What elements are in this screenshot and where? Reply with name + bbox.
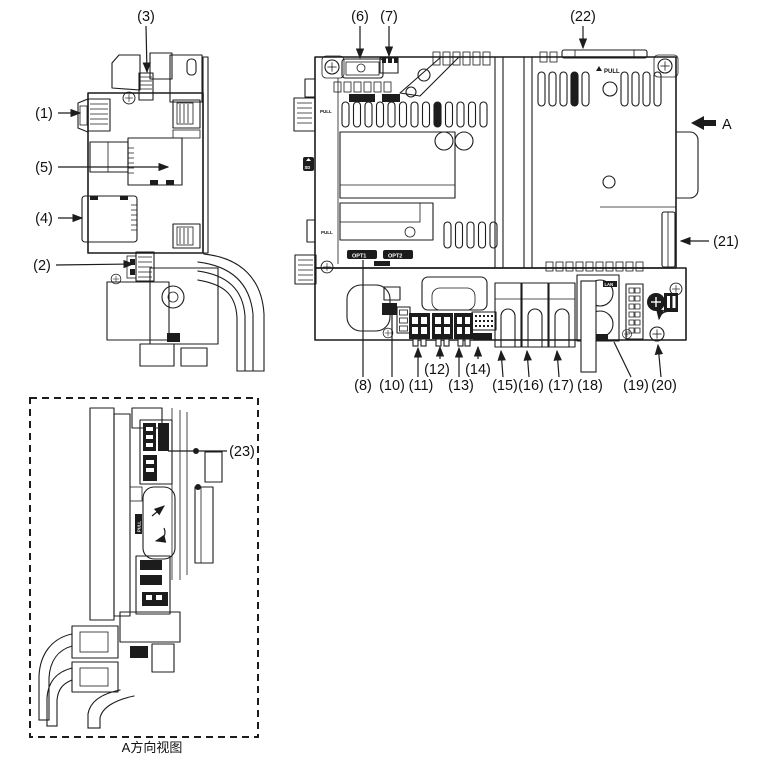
- svg-text:(18): (18): [577, 378, 603, 394]
- svg-text:(22): (22): [570, 9, 596, 25]
- option-port-badges: OPT1 OPT2: [347, 250, 413, 266]
- io-connector-11: [409, 313, 430, 346]
- svg-text:(12): (12): [424, 362, 450, 378]
- screw: [325, 60, 339, 74]
- sd-label: SD: [305, 165, 311, 170]
- callout-16: (16): [518, 351, 544, 394]
- lan-label: LAN: [605, 282, 614, 287]
- indicator-circle: [435, 132, 453, 150]
- separator-plate-18: [581, 281, 596, 372]
- callout-20: (20): [651, 345, 677, 394]
- callout-5: (5): [35, 160, 168, 176]
- svg-text:(3): (3): [137, 9, 155, 25]
- callout-12: (12): [424, 347, 450, 378]
- power-terminal-16: [522, 283, 548, 347]
- memory-slot-5: [128, 138, 182, 185]
- callout-10: (10): [379, 311, 405, 394]
- left-edge-connector-top: PULL: [294, 79, 332, 131]
- callout-21: (21): [681, 234, 739, 250]
- svg-text:(23): (23): [229, 444, 255, 460]
- screw: [123, 92, 135, 104]
- svg-text:(4): (4): [35, 211, 53, 227]
- svg-text:(20): (20): [651, 378, 677, 394]
- svg-text:(1): (1): [35, 106, 53, 122]
- board-clips: [334, 82, 391, 92]
- opt1-label: OPT1: [352, 254, 366, 260]
- left-edge-connector-bottom: PULL: [295, 220, 333, 284]
- svg-text:(6): (6): [351, 9, 369, 25]
- pull-label: PULL: [320, 109, 332, 114]
- expansion-connectors-23: [140, 420, 172, 484]
- svg-text:(5): (5): [35, 160, 53, 176]
- svg-text:(19): (19): [623, 378, 649, 394]
- release-lever: PULL: [135, 487, 175, 559]
- side-tab: [676, 132, 698, 198]
- cable-bundle-bottom: [39, 634, 134, 728]
- view-direction-arrow: A: [691, 116, 732, 133]
- dip-switch: [664, 293, 678, 312]
- power-terminal-17: [549, 283, 575, 347]
- screw: [658, 59, 672, 73]
- top-connector-housing: [112, 55, 140, 90]
- center-recess: [422, 277, 487, 310]
- din-clamp-top: [173, 100, 200, 138]
- svg-text:(21): (21): [713, 234, 739, 250]
- display-window: [340, 132, 455, 198]
- callout-2: (2): [33, 258, 133, 274]
- vent-slots-right: [538, 72, 661, 106]
- vent-slots-left: [342, 102, 487, 127]
- view-caption: A方向视图: [122, 740, 183, 755]
- svg-text:(17): (17): [548, 378, 574, 394]
- printed-arrow: [659, 311, 672, 319]
- rotary-switch: [647, 293, 665, 311]
- callout-4: (4): [35, 211, 82, 227]
- rail-bracket: [205, 452, 222, 482]
- callout-6: (6): [351, 9, 369, 58]
- opt2-label: OPT2: [388, 254, 402, 260]
- mount-hole: [187, 59, 196, 75]
- callout-19: (19): [614, 342, 649, 394]
- diagram-canvas: PULL: [0, 0, 776, 761]
- lower-stack: [136, 556, 170, 614]
- svg-text:(10): (10): [379, 378, 405, 394]
- terminal-assembly: [107, 268, 218, 366]
- cable-bundle: [198, 254, 264, 371]
- svg-text:(8): (8): [354, 378, 372, 394]
- svg-text:(7): (7): [380, 9, 398, 25]
- din-handle-22: PULL: [562, 50, 647, 75]
- callout-22: (22): [570, 9, 596, 48]
- screw: [321, 261, 333, 273]
- indicator-circle: [455, 132, 473, 150]
- callout-8: (8): [354, 260, 372, 394]
- svg-text:(11): (11): [409, 378, 434, 394]
- callout-14: (14): [465, 347, 491, 378]
- io-connector-12: [432, 313, 453, 346]
- vent-slots-small: [444, 222, 497, 248]
- sd-card-badge: SD: [303, 157, 314, 171]
- svg-text:(2): (2): [33, 258, 51, 274]
- din-clamp-bottom: [173, 224, 200, 248]
- callout-18: (18): [577, 378, 603, 394]
- svg-text:(14): (14): [465, 362, 491, 378]
- left-side-view: [78, 53, 264, 371]
- hardware-installation-diagram: PULL: [0, 0, 776, 761]
- board-clips-row: [546, 262, 643, 271]
- side-connector-1: [78, 99, 110, 132]
- io-connector-13: [454, 313, 473, 346]
- callout-1: (1): [35, 106, 80, 122]
- callout-7: (7): [380, 9, 398, 56]
- power-terminal-15: [495, 283, 521, 347]
- svg-text:(13): (13): [448, 378, 474, 394]
- up-arrow-icon: [596, 66, 602, 71]
- direction-a-label: A: [722, 117, 732, 133]
- callout-17: (17): [548, 351, 574, 394]
- pull-label: PULL: [604, 69, 620, 75]
- svg-text:(16): (16): [518, 378, 544, 394]
- callout-15: (15): [492, 351, 518, 394]
- top-connector-6: [342, 59, 383, 78]
- screw: [650, 327, 664, 341]
- pull-label: PULL: [321, 230, 333, 235]
- bottom-assembly: [72, 612, 180, 692]
- lower-panel-window: [340, 203, 433, 240]
- svg-text:(15): (15): [492, 378, 518, 394]
- rail-plate: [195, 487, 213, 563]
- screw: [622, 329, 631, 338]
- pull-label: PULL: [137, 521, 142, 532]
- battery-cover-4: [82, 196, 137, 242]
- din-rail-tab-21: [662, 212, 675, 267]
- reference-dot: [195, 484, 201, 490]
- front-view: PULL: [294, 50, 698, 372]
- side-body: [88, 93, 203, 253]
- terminal-strip: [626, 284, 643, 339]
- pin-header-14: [472, 312, 496, 340]
